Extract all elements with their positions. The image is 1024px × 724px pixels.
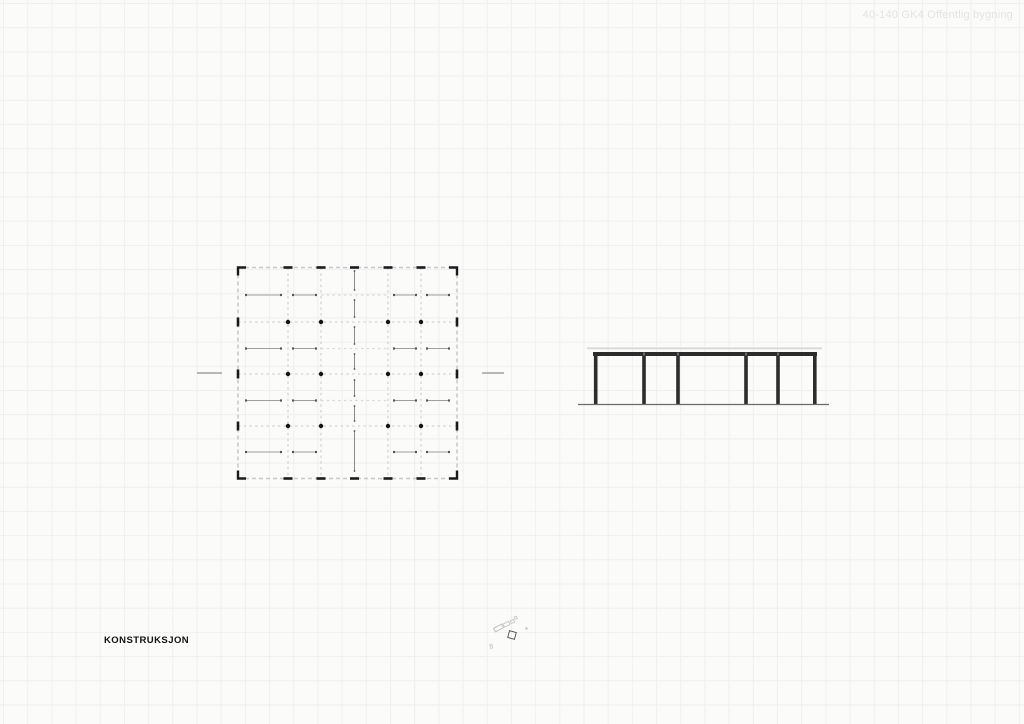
span-arrow-cap [426, 399, 428, 401]
marker-dot [525, 627, 527, 629]
span-arrow-cap [280, 451, 282, 453]
elevation-column [642, 353, 646, 405]
span-arrow-cap [292, 294, 294, 296]
site-marker: 8 [489, 616, 528, 651]
column-dot [286, 372, 290, 376]
span-arrow-cap [245, 294, 247, 296]
span-arrow-cap [448, 451, 450, 453]
construction-drawing: 8 [0, 0, 1024, 724]
span-line-end [354, 470, 356, 472]
elevation-beam [593, 352, 817, 356]
column-dot [386, 320, 390, 324]
span-line-end [354, 420, 356, 422]
span-arrow-cap [245, 399, 247, 401]
span-arrow-cap [415, 451, 417, 453]
column-dot [419, 320, 423, 324]
span-line-end [354, 430, 356, 432]
span-arrow-cap [415, 347, 417, 349]
span-arrow-cap [426, 451, 428, 453]
span-line-end [354, 395, 356, 397]
marker-glyph [510, 619, 514, 623]
span-arrow-cap [315, 451, 317, 453]
span-arrow-cap [292, 347, 294, 349]
span-line-end [354, 289, 356, 291]
span-line-end [354, 353, 356, 355]
elevation-column [776, 353, 780, 405]
span-arrow-cap [292, 451, 294, 453]
span-arrow-cap [426, 347, 428, 349]
span-arrow-cap [393, 451, 395, 453]
marker-glyph [503, 621, 510, 627]
drawing-sheet: 40-140 GK4 Offentlig bygning 8 KONSTRUKS… [0, 0, 1024, 724]
column-dot [419, 424, 423, 428]
structural-elevation [578, 348, 829, 404]
marker-glyph [494, 624, 504, 632]
marker-glyph [514, 616, 517, 619]
span-line-end [354, 326, 356, 328]
span-arrow-cap [426, 294, 428, 296]
span-line-end [354, 316, 356, 318]
span-line-end [354, 368, 356, 370]
span-arrow-cap [415, 399, 417, 401]
span-line-end [354, 379, 356, 381]
column-dot [419, 372, 423, 376]
span-arrow-cap [315, 347, 317, 349]
plan-corner-mark [449, 268, 457, 276]
column-dot [319, 424, 323, 428]
column-dot [386, 424, 390, 428]
span-line-end [354, 299, 356, 301]
marker-glyph [508, 631, 517, 640]
span-arrow-cap [280, 347, 282, 349]
span-arrow-cap [448, 294, 450, 296]
span-arrow-cap [292, 399, 294, 401]
span-arrow-cap [245, 347, 247, 349]
span-arrow-cap [315, 399, 317, 401]
elevation-column [676, 353, 680, 405]
column-dot [286, 424, 290, 428]
marker-glyph-text: 8 [489, 643, 495, 651]
span-arrow-cap [393, 347, 395, 349]
span-arrow-cap [393, 399, 395, 401]
span-arrow-cap [280, 399, 282, 401]
plan-corner-mark [449, 471, 457, 479]
column-dot [286, 320, 290, 324]
span-arrow-cap [448, 347, 450, 349]
column-dot [319, 320, 323, 324]
span-arrow-cap [315, 294, 317, 296]
span-line-end [354, 343, 356, 345]
span-arrow-cap [280, 294, 282, 296]
plan-corner-mark [238, 471, 246, 479]
span-arrow-cap [448, 399, 450, 401]
span-line-end [354, 270, 356, 272]
elevation-column [813, 353, 817, 405]
plan-corner-mark [238, 268, 246, 276]
elevation-column [594, 353, 598, 405]
column-dot [319, 372, 323, 376]
span-arrow-cap [245, 451, 247, 453]
structural-plan [197, 268, 504, 479]
span-line-end [354, 405, 356, 407]
column-dot [386, 372, 390, 376]
span-arrow-cap [415, 294, 417, 296]
span-arrow-cap [393, 294, 395, 296]
page-title: KONSTRUKSJON [104, 635, 189, 646]
elevation-column [744, 353, 748, 405]
